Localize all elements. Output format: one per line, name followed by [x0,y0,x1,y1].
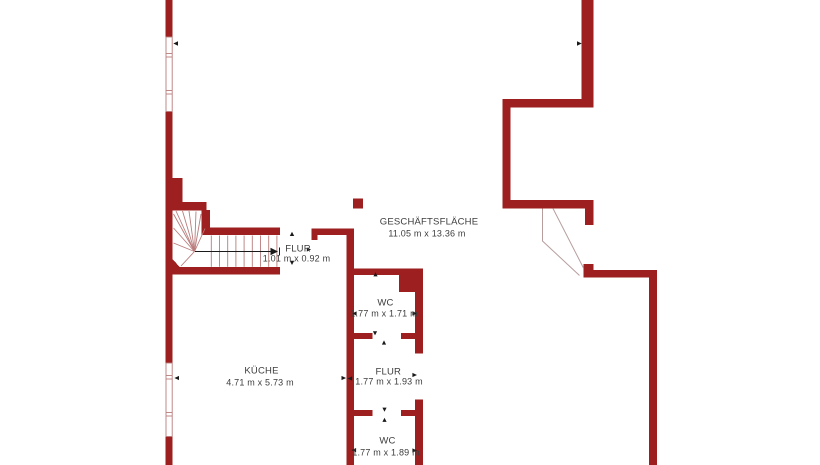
dim-arrow-right [342,376,347,380]
dim-arrow-up [382,340,386,344]
wall-corner-chamfer [166,251,181,268]
dim-arrow-right [577,41,582,45]
door-swing [543,209,584,276]
room-dimensions-kueche: 4.71 m x 5.73 m [226,379,294,388]
wall-stair-run-top [202,228,281,236]
wall-stair-step [202,210,211,229]
room-label-wc-1: WC [377,298,393,307]
dim-arrow-left [173,41,178,45]
room-dimensions-wc-2: 1.77 m x 1.89 m [352,449,420,458]
wall-divider-left [354,410,373,416]
room-label-flur-2: FLUR [375,367,401,376]
wall-left-mid [166,112,173,364]
window-lower-left [166,363,172,437]
dim-arrow-down [373,331,377,335]
room-dimensions-flur-2: 1.77 m x 1.93 m [355,377,423,386]
floor-plan: GESCHÄFTSFLÄCHE 11.05 m x 13.36 m FLUR 1… [0,0,820,465]
wall-stair-top [173,202,207,211]
dim-arrow-down [382,408,386,412]
wall-lower-horizontal [584,270,658,278]
wall-bump-top [503,99,594,108]
dim-arrow-up [290,232,294,236]
dim-arrow-left [174,376,179,380]
room-label-kueche: KÜCHE [244,367,278,376]
wall-flur1-top-stub [312,235,318,240]
wall-bump-bottom [503,200,594,209]
room-dimensions-wc-1: 1.77 m x 1.71 m [350,310,418,319]
pillar-marker [353,199,363,209]
wall-stair-bottom [166,267,281,275]
wall-left-bottom [166,437,173,465]
room-dimensions-flur-1: 1.01 m x 0.92 m [263,254,331,263]
wall-bump-right-stub [585,200,594,225]
wall-left-top [166,0,173,38]
wall-topright-vertical [582,0,594,107]
wall-wc1-bottom-left [354,333,373,339]
wall-column-left [347,229,355,465]
window-upper-left [166,37,172,112]
room-dimensions-geschaeftsflaeche: 11.05 m x 13.36 m [388,229,465,238]
room-label-wc-2: WC [379,436,395,445]
room-label-geschaeftsflaeche: GESCHÄFTSFLÄCHE [380,217,479,226]
shaft-block [399,269,423,293]
wall-bump-left [503,99,511,209]
wall-right-vertical [649,271,657,465]
wall-wc1-bottom-right [401,333,423,339]
dim-arrow-up [382,418,386,422]
wall-flur1-top [312,229,351,236]
wall-column-right-upper [415,292,423,354]
stair-winders [174,211,206,266]
